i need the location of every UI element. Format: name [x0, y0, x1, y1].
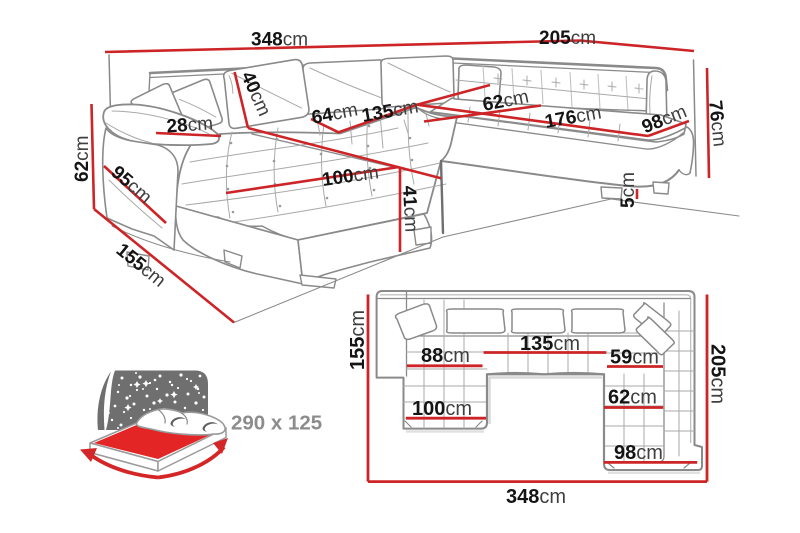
svg-text:41cm: 41cm [398, 185, 421, 233]
svg-text:98cm: 98cm [614, 442, 663, 464]
svg-text:88cm: 88cm [421, 345, 470, 367]
svg-text:290 x 125: 290 x 125 [231, 412, 322, 435]
svg-text:135cm: 135cm [520, 333, 580, 355]
svg-text:155cm: 155cm [347, 310, 369, 370]
svg-text:62cm: 62cm [72, 136, 93, 182]
svg-text:28cm: 28cm [166, 113, 214, 137]
svg-text:5cm: 5cm [618, 172, 639, 208]
svg-text:348cm: 348cm [251, 30, 308, 51]
svg-text:59cm: 59cm [610, 347, 659, 369]
svg-text:348cm: 348cm [506, 486, 566, 508]
svg-text:205cm: 205cm [539, 28, 596, 49]
svg-text:205cm: 205cm [707, 344, 729, 404]
svg-text:100cm: 100cm [412, 398, 472, 420]
svg-text:62cm: 62cm [608, 387, 657, 409]
